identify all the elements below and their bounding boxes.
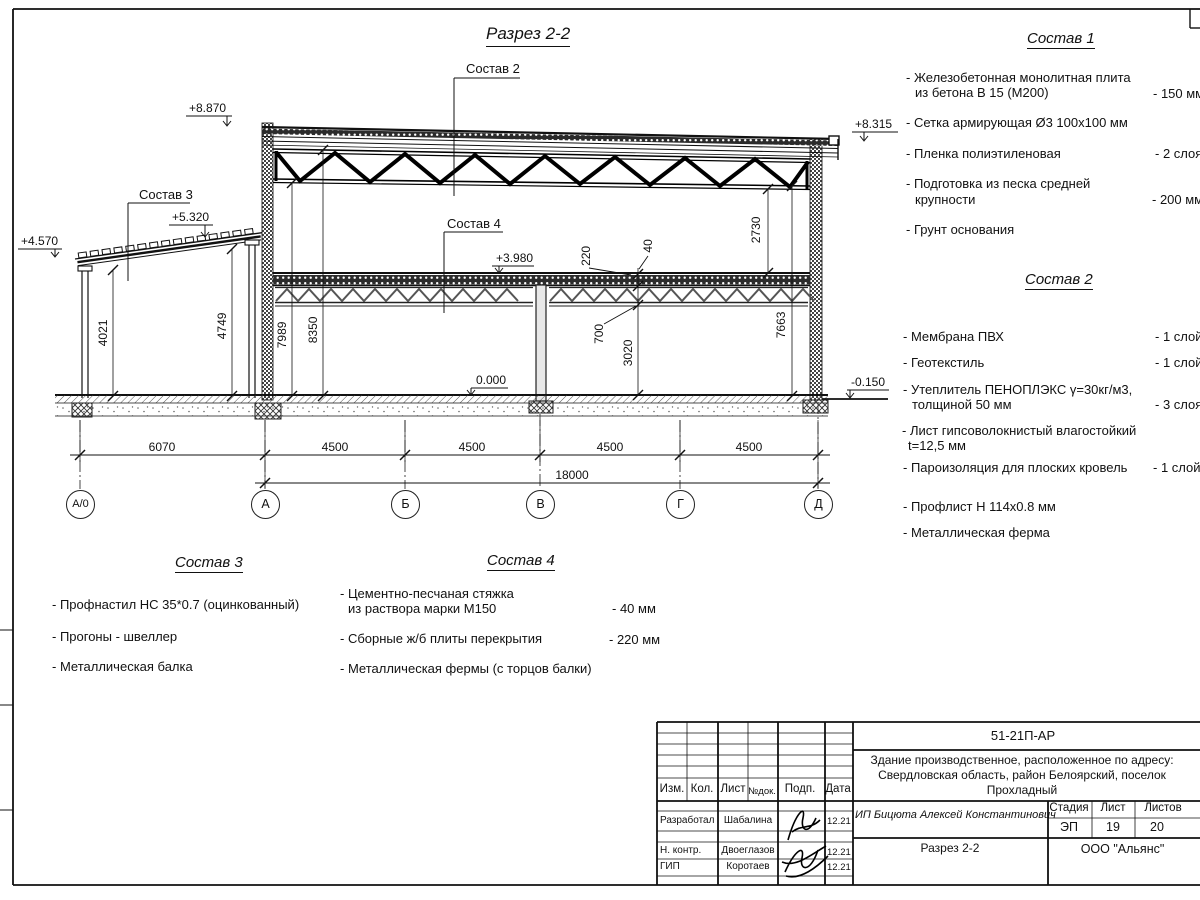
elevation-5320: +5.320: [172, 211, 209, 225]
dim-4500-2: 4500: [442, 441, 502, 455]
dim-8350: 8350: [307, 310, 321, 350]
building-section: [55, 123, 888, 419]
dim-220: 220: [580, 236, 594, 276]
stamp-row2-role: Н. контр.: [660, 845, 701, 856]
stamp-row3-date: 12.21: [827, 862, 851, 873]
dim-2730: 2730: [750, 210, 764, 250]
stamp-row1-name: Шабалина: [718, 815, 778, 826]
drawing-sheet: Разрез 2-2 Состав 2 Состав 3 Состав 4 +8…: [0, 0, 1200, 900]
sostav2-item3-line1: - Утеплитель ПЕНОПЛЭКС γ=30кг/м3,: [903, 383, 1132, 398]
intermediate-floor: [273, 273, 810, 286]
dim-3020: 3020: [622, 333, 636, 373]
dim-40: 40: [642, 226, 656, 266]
elevation-m0150: -0.150: [851, 376, 885, 390]
wall-axis-d: [810, 139, 822, 400]
sostav4-item1-value: - 40 мм: [612, 602, 656, 617]
sostav1-item4-line2: крупности: [915, 193, 975, 208]
stamp-doc-number: 51-21П-АР: [953, 728, 1093, 743]
elevation-8315: +8.315: [855, 118, 892, 132]
dim-4500-1: 4500: [305, 441, 365, 455]
axis-bubble-d: Д: [804, 490, 833, 519]
label-sostav3-leader: Состав 3: [139, 188, 193, 203]
axis-bubble-a0: А/0: [66, 490, 95, 519]
dim-4021: 4021: [97, 313, 111, 353]
stamp-row2-date: 12.21: [827, 847, 851, 858]
dim-7663: 7663: [775, 305, 789, 345]
sostav1-item4-line1: - Подготовка из песка средней: [906, 177, 1090, 192]
stamp-sheet-label: Лист: [1093, 802, 1133, 814]
stamp-row3-role: ГИП: [660, 861, 680, 872]
sostav2-item1-value: - 1 слой: [1155, 330, 1200, 345]
sostav1-item3-value: - 2 слоя: [1155, 147, 1200, 162]
sostav3-item3: - Металлическая балка: [52, 660, 193, 675]
stamp-row1-date: 12.21: [827, 816, 851, 827]
wall-axis-a: [262, 123, 273, 400]
elevation-3980: +3.980: [496, 252, 533, 266]
stamp-object-name-1: Здание производственное, расположенное п…: [862, 753, 1182, 767]
sostav2-item6: - Профлист Н 114х0.8 мм: [903, 500, 1056, 515]
label-sostav4-leader: Состав 4: [447, 217, 501, 232]
sostav3-item2: - Прогоны - швеллер: [52, 630, 177, 645]
sostav1-item1-line1: - Железобетонная монолитная плита: [906, 71, 1131, 86]
sostav1-item2: - Сетка армирующая Ø3 100х100 мм: [906, 116, 1128, 131]
main-roof: [262, 127, 839, 160]
sostav2-item3-line2: толщиной 50 мм: [912, 398, 1012, 413]
dim-4500-4: 4500: [719, 441, 779, 455]
stamp-row1-role: Разработал: [660, 815, 714, 826]
sostav2-title: Состав 2: [1025, 271, 1093, 290]
stamp-drawing-name: Разрез 2-2: [890, 841, 1010, 855]
dim-4749: 4749: [216, 306, 230, 346]
ground-slab: [55, 395, 888, 416]
sostav2-item4-line1: - Лист гипсоволокнистый влагостойкий: [902, 424, 1136, 439]
elevation-8870: +8.870: [189, 102, 226, 116]
sostav4-item1-line1: - Цементно-песчаная стяжка: [340, 587, 514, 602]
signatures: [782, 811, 828, 877]
dim-7989: 7989: [276, 315, 290, 355]
sostav4-title: Состав 4: [487, 552, 555, 571]
sostav2-item2-value: - 1 слой: [1155, 356, 1200, 371]
label-sostav2-leader: Состав 2: [466, 62, 520, 77]
drawing-title: Разрез 2-2: [486, 24, 570, 47]
sostav2-item2: - Геотекстиль: [903, 356, 984, 371]
sostav2-item3-value: - 3 слоя: [1155, 398, 1200, 413]
stamp-object-name-2: Свердловская область, район Белоярский, …: [862, 768, 1182, 782]
axis-bubble-b: Б: [391, 490, 420, 519]
column-axis-v: [536, 285, 546, 401]
stamp-client: ИП Бицюта Алексей Константинович: [855, 809, 1045, 821]
sostav3-item1: - Профнастил НС 35*0.7 (оцинкованный): [52, 598, 299, 613]
elevation-4570: +4.570: [21, 235, 58, 249]
stamp-stage-label: Стадия: [1049, 802, 1089, 814]
sostav4-item1-line2: из раствора марки М150: [348, 602, 496, 617]
sostav1-item4-value: - 200 мм: [1152, 193, 1200, 208]
stamp-row3-name: Коротаев: [718, 861, 778, 872]
dim-4500-3: 4500: [580, 441, 640, 455]
sostav1-item5: - Грунт основания: [906, 223, 1014, 238]
sostav4-item2-value: - 220 мм: [609, 633, 660, 648]
axis-bubble-v: В: [526, 490, 555, 519]
stamp-col-ndok: №док.: [742, 786, 782, 797]
stamp-sheets-label: Листов: [1140, 802, 1186, 814]
stamp-sheet-value: 19: [1094, 820, 1132, 834]
stamp-company: ООО "Альянс": [1060, 842, 1185, 856]
sostav1-item1-line2: из бетона В 15 (М200): [915, 86, 1049, 101]
stamp-col-data: Дата: [818, 783, 858, 795]
sostav4-item3: - Металлическая фермы (с торцов балки): [340, 662, 592, 677]
stamp-object-name-3: Прохладный: [862, 783, 1182, 797]
sostav2-item4-line2: t=12,5 мм: [908, 439, 966, 454]
sostav2-item1: - Мембрана ПВХ: [903, 330, 1004, 345]
axis-bubble-a: А: [251, 490, 280, 519]
stamp-stage-value: ЭП: [1050, 820, 1088, 834]
sostav1-item3: - Пленка полиэтиленовая: [906, 147, 1061, 162]
sostav2-item5: - Пароизоляция для плоских кровель: [903, 461, 1127, 476]
elevation-0000: 0.000: [476, 374, 506, 388]
axis-bubble-g: Г: [666, 490, 695, 519]
sostav4-item2: - Сборные ж/б плиты перекрытия: [340, 632, 542, 647]
sostav1-title: Состав 1: [1027, 30, 1095, 49]
dim-700: 700: [593, 314, 607, 354]
sostav1-item1-value: - 150 мм: [1153, 87, 1200, 102]
sostav2-item7: - Металлическая ферма: [903, 526, 1050, 541]
sostav3-title: Состав 3: [175, 554, 243, 573]
sostav2-item5-value: - 1 слой: [1153, 461, 1200, 476]
stamp-col-podp: Подп.: [780, 783, 820, 795]
dim-18000: 18000: [542, 469, 602, 483]
stamp-row2-name: Двоеглазов: [718, 845, 778, 856]
stamp-sheets-value: 20: [1138, 820, 1176, 834]
dim-6070: 6070: [132, 441, 192, 455]
